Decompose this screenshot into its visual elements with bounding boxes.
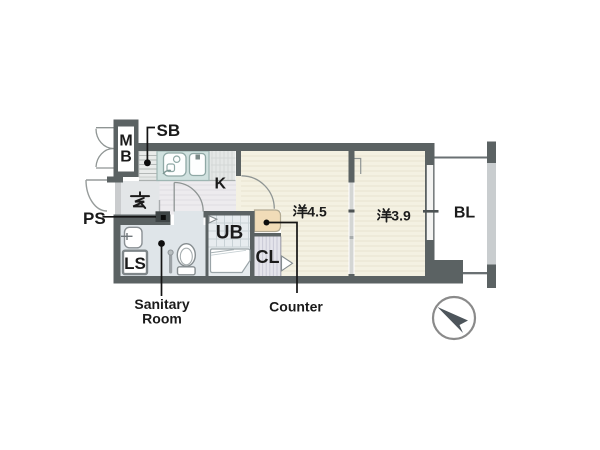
svg-text:CL: CL bbox=[256, 247, 280, 267]
svg-text:4.5: 4.5 bbox=[307, 204, 327, 220]
svg-text:M: M bbox=[119, 133, 132, 150]
svg-text:Room: Room bbox=[142, 311, 182, 327]
svg-text:UB: UB bbox=[216, 223, 243, 244]
svg-text:BL: BL bbox=[454, 205, 476, 222]
svg-text:LS: LS bbox=[124, 254, 146, 273]
svg-text:B: B bbox=[120, 149, 132, 166]
svg-text:SB: SB bbox=[157, 121, 181, 140]
svg-text:Counter: Counter bbox=[269, 299, 323, 315]
svg-text:PS: PS bbox=[83, 209, 106, 228]
svg-text:K: K bbox=[215, 176, 227, 193]
svg-text:3.9: 3.9 bbox=[391, 208, 411, 224]
